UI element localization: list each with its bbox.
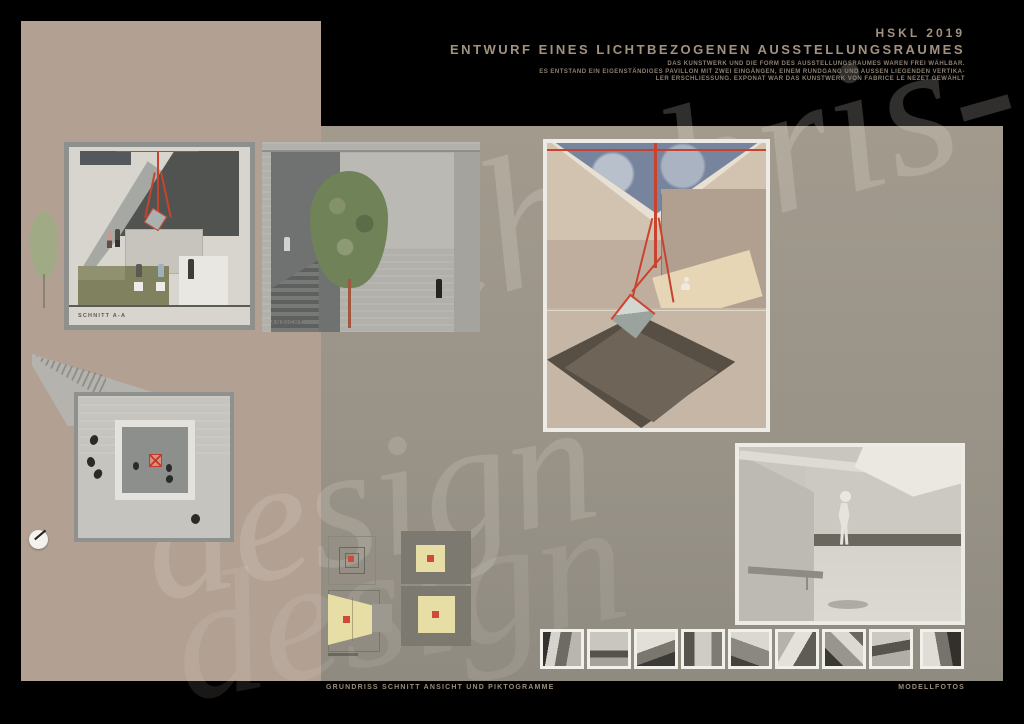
section-roof-band xyxy=(80,151,131,165)
pictogram-cone-window xyxy=(372,604,392,632)
elevation-roof-line xyxy=(262,150,480,152)
person-walking xyxy=(436,279,442,298)
seat-cube-right xyxy=(156,282,165,291)
program-label: HSKL 2019 xyxy=(876,26,965,40)
pictogram-exhibit-marker xyxy=(427,555,434,562)
pictogram-exhibit-marker xyxy=(432,611,439,618)
person-seated-left xyxy=(136,264,142,277)
photo2-figure-head xyxy=(840,491,851,502)
photo-mini-figure xyxy=(681,283,690,290)
thumbnail-image xyxy=(778,632,816,666)
sculpture-top-bar xyxy=(116,151,199,153)
section-drawing: SCHNITT A-A xyxy=(64,142,255,330)
thumbnail-image xyxy=(872,632,910,666)
filmstrip-thumbnail-4 xyxy=(681,629,725,669)
photo-sculpture-top-bar xyxy=(547,149,766,151)
north-arrow-icon xyxy=(29,530,48,549)
description-line-3: LER ERSCHLIESSUNG. EXPONAT WAR DAS KUNST… xyxy=(539,76,965,84)
plan-person-dot xyxy=(166,464,172,472)
filmstrip-thumbnail-6 xyxy=(775,629,819,669)
sculpture-cable xyxy=(157,151,159,215)
thumbnail-image xyxy=(825,632,863,666)
filmstrip-thumbnail-1 xyxy=(540,629,584,669)
drawings-caption: GRUNDRISS SCHNITT ANSICHT UND PIKTOGRAMM… xyxy=(326,684,554,691)
thumbnail-image xyxy=(923,632,961,666)
plan-person-dot xyxy=(133,462,139,470)
page-title: ENTWURF EINES LICHTBEZOGENEN AUSSTELLUNG… xyxy=(450,42,965,57)
portfolio-page: chubris- design design HSKL 2019 ENTWURF… xyxy=(0,0,1024,724)
light-pictograms xyxy=(328,530,474,662)
filmstrip-thumbnail-7 xyxy=(822,629,866,669)
thumbnail-image xyxy=(590,632,628,666)
photo-sculpture-cable xyxy=(654,143,657,268)
person-standing-coat xyxy=(107,231,112,248)
thumbnail-image xyxy=(731,632,769,666)
photo2-shadow-band xyxy=(806,534,961,546)
pictogram-exhibit-marker xyxy=(343,616,350,623)
thumbnail-image xyxy=(637,632,675,666)
person-seated-right xyxy=(158,264,164,277)
photos-caption: MODELLFOTOS xyxy=(898,684,965,691)
section-ground-line xyxy=(69,305,250,307)
left-background-panel xyxy=(21,21,321,681)
section-label: SCHNITT A-A xyxy=(78,313,126,319)
model-photo-sculpture xyxy=(543,139,770,432)
thumbnail-image xyxy=(543,632,581,666)
tree-trunk-large xyxy=(348,279,351,328)
filmstrip-thumbnail-9 xyxy=(920,629,964,669)
pictogram-cone-divider xyxy=(352,598,353,641)
section-grass-light xyxy=(78,266,125,280)
section-opening xyxy=(179,256,228,306)
floor-plan-drawing xyxy=(28,352,240,564)
description-line-2: ES ENTSTAND EIN EIGENSTÄNDIGES PAVILLON … xyxy=(539,69,965,77)
elevation-right-column xyxy=(454,150,480,332)
seat-cube-left xyxy=(134,282,143,291)
photo2-bench-leg xyxy=(806,574,808,590)
photo-ledge-highlight xyxy=(547,310,766,311)
thumbnail-image xyxy=(684,632,722,666)
person-standing-photographer xyxy=(115,229,120,247)
elevation-label: ANSICHT xyxy=(271,320,304,326)
photo2-left-wall xyxy=(739,447,814,621)
description-line-1: DAS KUNSTWERK UND DIE FORM DES AUSSTELLU… xyxy=(539,61,965,69)
person-standing-right xyxy=(188,259,194,279)
plan-exhibit-marker xyxy=(149,454,162,467)
filmstrip-thumbnail-5 xyxy=(728,629,772,669)
model-photo-figure-image xyxy=(739,447,961,621)
filmstrip-thumbnail-8 xyxy=(869,629,913,669)
model-photo-sculpture-image xyxy=(547,143,766,428)
photo-mini-figure-head xyxy=(684,277,689,282)
elevation-drawing: ANSICHT xyxy=(262,142,480,332)
pictogram-exhibit-marker xyxy=(348,556,354,562)
project-description: DAS KUNSTWERK UND DIE FORM DES AUSSTELLU… xyxy=(539,61,965,84)
tree-trunk-small xyxy=(43,274,45,308)
model-photo-figure xyxy=(735,443,965,625)
pictogram-scale-mark xyxy=(328,653,358,656)
photo2-figure-shadow xyxy=(828,600,868,609)
person-on-stairs xyxy=(284,237,290,251)
filmstrip-thumbnail-2 xyxy=(587,629,631,669)
filmstrip-thumbnail-3 xyxy=(634,629,678,669)
